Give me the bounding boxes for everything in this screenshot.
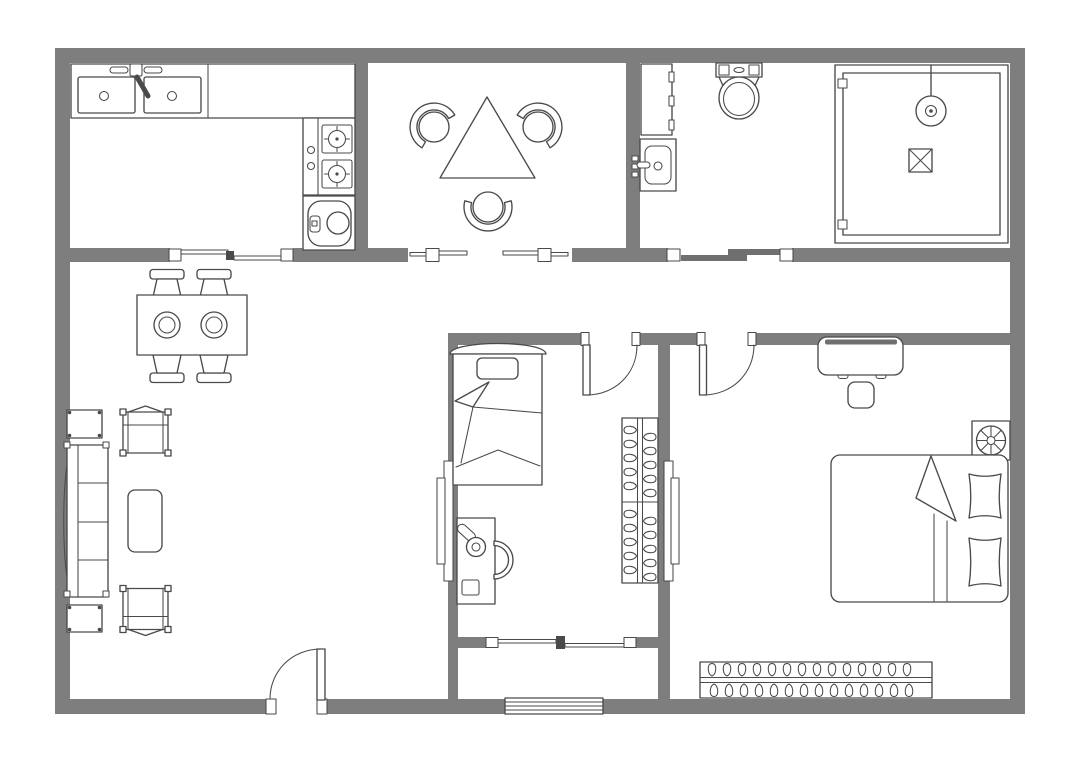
triangular-table: [440, 97, 535, 178]
interior-window-2: [664, 461, 679, 581]
bedroom-master: [700, 337, 1010, 698]
single-bed: [450, 344, 546, 486]
interior-window-1: [437, 461, 453, 581]
washing-machine: [303, 196, 355, 250]
floor-plan-page: House floor plan: [0, 0, 1080, 763]
dining-room: [410, 97, 562, 231]
tub-chair-left: [410, 103, 455, 148]
bathroom: [632, 63, 1008, 243]
tub-chair-right: [517, 103, 562, 148]
side-table-bottom: [67, 605, 102, 632]
balcony-louver-window: [505, 698, 603, 714]
armchair-top: [120, 406, 171, 456]
kitchen-sliding-window: [169, 248, 293, 262]
bedroom2-door: [697, 333, 756, 396]
toilet: [716, 63, 762, 119]
stool: [848, 382, 874, 408]
stove: [303, 118, 355, 195]
pillow-2: [969, 538, 1001, 586]
bedroom1-sliding-window: [486, 636, 636, 649]
floor-drain: [909, 149, 932, 172]
living-area: [64, 270, 247, 636]
wall-kitchen-dining: [355, 63, 368, 248]
desk-chair: [494, 541, 513, 579]
wall-exterior-top: [55, 48, 1025, 63]
bedroom1-door: [581, 333, 640, 396]
double-bed: [831, 455, 1008, 602]
coffee-table: [128, 490, 162, 552]
bedroom-small: [450, 344, 658, 605]
storage-cabinet: [641, 64, 674, 135]
wardrobe-bedroom2: [700, 662, 932, 698]
entrance-door: [266, 649, 327, 714]
armchair-bottom: [120, 586, 171, 636]
dining-sliding-window: [408, 248, 572, 262]
tub-chair-bottom: [464, 192, 512, 231]
wall-exterior-right: [1010, 48, 1025, 714]
side-table-top: [67, 410, 102, 438]
dresser: [818, 337, 903, 379]
floor-plan-canvas: House floor plan: [0, 0, 1080, 763]
ceiling-fan: [972, 421, 1010, 460]
kitchen: [71, 64, 355, 250]
bathroom-sliding-door: [667, 248, 793, 262]
pillow-1: [969, 474, 1001, 518]
dining-table-set: [137, 270, 247, 383]
wardrobe-bedroom1: [622, 418, 658, 583]
sofa: [64, 442, 109, 597]
